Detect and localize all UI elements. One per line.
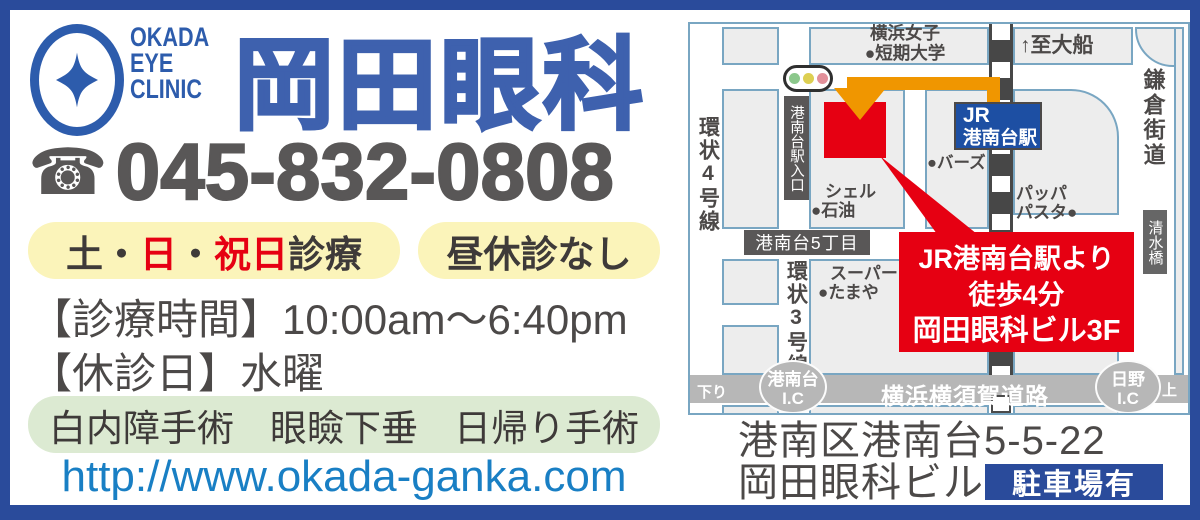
clinic-advertisement: OKADA EYE CLINIC 岡田眼科 ☎ 045-832-0808 土 ・… xyxy=(0,0,1200,520)
yellow-light xyxy=(803,73,814,84)
sign-konandai5: 港南台5丁目 xyxy=(744,230,870,255)
sign-station-entrance: 港南台駅入口 xyxy=(784,96,809,200)
map-block xyxy=(722,259,779,305)
badge-segment: 祝日 xyxy=(214,224,288,278)
green-light xyxy=(789,73,800,84)
closed-line: 【休診日】水曜 xyxy=(30,340,324,401)
badge-segment: ・ xyxy=(103,224,140,278)
hours-value: 10:00am〜6:40pm xyxy=(282,296,628,343)
badge-segment: 日 xyxy=(140,224,177,278)
sign-shimizubashi: 清水橋 xyxy=(1143,210,1167,274)
highway-name: 横浜横須賀道路 xyxy=(850,377,1080,411)
phone-number: 045-832-0808 xyxy=(116,126,614,218)
service-item: 白内障手術 xyxy=(49,398,234,452)
label-tamaya: スーパー ●たまや xyxy=(818,264,898,302)
badge-sat-sun-holiday: 土 ・ 日 ・ 祝日 診療 xyxy=(28,222,400,279)
hours-label: 【診療時間】 xyxy=(30,296,282,343)
interchange-hino: 日野 I.C xyxy=(1095,360,1161,414)
label-to-ofuna: ↑至大船 xyxy=(1020,34,1094,58)
jr-station-box: JR 港南台駅 xyxy=(954,102,1042,150)
label-university: 横浜女子 ●短期大学 xyxy=(830,24,980,63)
clinic-location-marker xyxy=(824,102,886,158)
map-block xyxy=(1174,27,1184,375)
label-kamakura-kaido: 鎌倉街道 xyxy=(1140,68,1165,168)
website-url[interactable]: http://www.okada-ganka.com xyxy=(28,452,660,502)
label-shell: シェル ●石油 xyxy=(811,182,876,220)
address-line1: 港南区港南台5-5-22 xyxy=(738,420,1106,462)
badge-segment: 診療 xyxy=(288,224,362,278)
logo-line: CLINIC xyxy=(130,76,209,102)
logo-line: EYE xyxy=(130,50,209,76)
hours-line: 【診療時間】10:00am〜6:40pm xyxy=(30,286,628,347)
label-up-direction: 上り xyxy=(1162,379,1188,415)
badge-segment: 土 xyxy=(66,224,103,278)
service-item: 眼瞼下垂 xyxy=(270,398,418,452)
access-map: 横浜女子 ●短期大学 ↑至大船 鎌倉街道 環状4号線 環状3号線 港南台駅入口 xyxy=(688,22,1190,415)
label-birds: ●バーズ xyxy=(927,154,986,172)
label-ring4: 環状4号線 xyxy=(696,116,720,233)
sparkle-star-icon xyxy=(56,51,98,109)
map-block xyxy=(722,27,779,65)
label-pappa-pasta: パッパ パスタ● xyxy=(1016,184,1077,222)
badge-segment: ・ xyxy=(177,224,214,278)
phone-row: ☎ 045-832-0808 xyxy=(28,126,614,218)
traffic-light-icon xyxy=(783,65,833,92)
map-block xyxy=(722,89,779,229)
services-badge: 白内障手術 眼瞼下垂 日帰り手術 xyxy=(28,396,660,453)
closed-label: 【休診日】 xyxy=(30,350,240,397)
clinic-logo xyxy=(30,24,124,136)
telephone-icon: ☎ xyxy=(28,135,108,210)
access-callout: JR港南台駅より 徒歩4分 岡田眼科ビル3F xyxy=(899,232,1134,352)
red-light xyxy=(817,73,828,84)
interchange-konandai: 港南台 I.C xyxy=(759,360,827,414)
label-down-direction: 下り xyxy=(697,381,727,402)
parking-badge: 駐車場有 xyxy=(985,464,1163,500)
badge-no-lunch-break: 昼休診なし xyxy=(418,222,660,279)
service-item: 日帰り手術 xyxy=(454,398,639,452)
logo-line: OKADA xyxy=(130,24,209,50)
clinic-name-english: OKADA EYE CLINIC xyxy=(130,24,209,102)
closed-value: 水曜 xyxy=(240,350,324,397)
